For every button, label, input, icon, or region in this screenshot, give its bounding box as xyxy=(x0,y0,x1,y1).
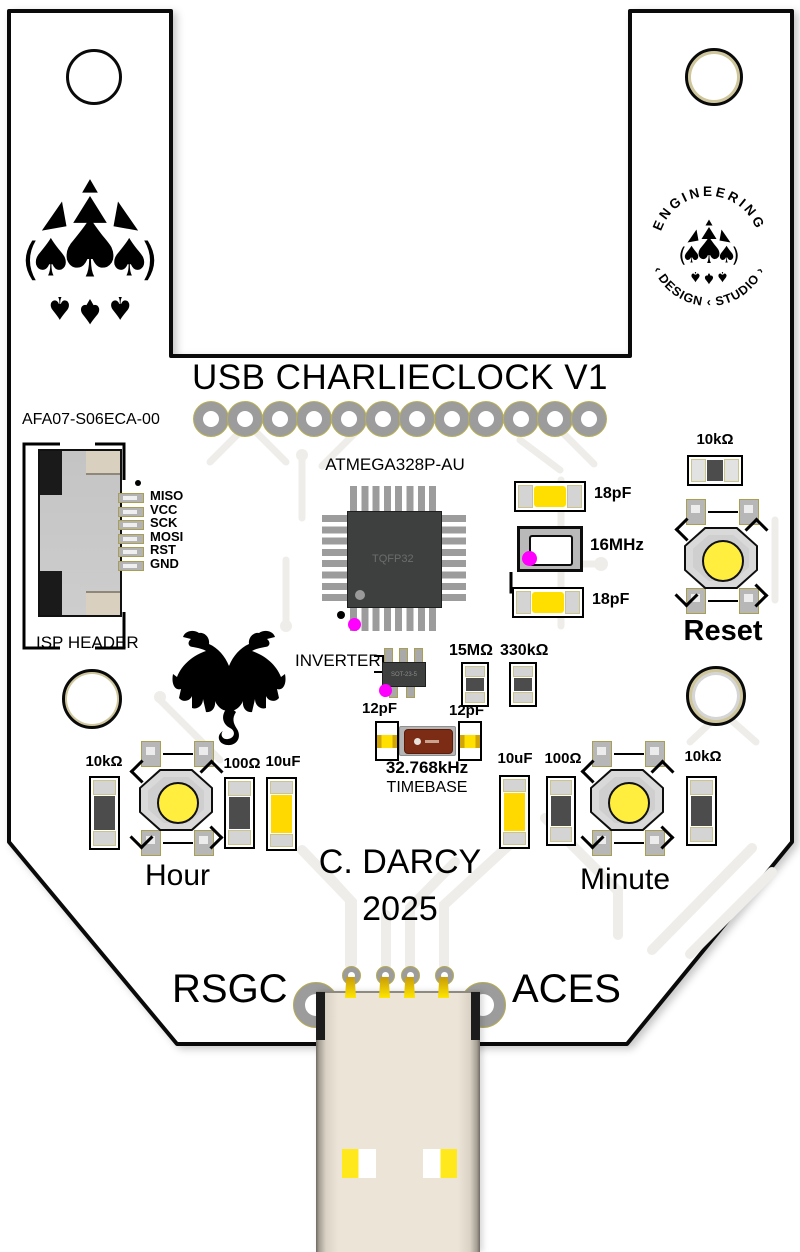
usb-contact-window-left xyxy=(342,1149,376,1178)
silk-dot-black xyxy=(337,611,345,619)
usb-shell-edge xyxy=(471,992,480,1040)
board-title: USB CHARLIECLOCK V1 xyxy=(160,360,640,397)
isp-pin-label-sck: SCK xyxy=(150,516,177,530)
mcu-package-label: TQFP32 xyxy=(372,554,414,566)
reset-resistor-label: 10kΩ xyxy=(683,432,747,448)
cap-18pf-bottom xyxy=(512,587,584,618)
through-hole-pad xyxy=(227,401,263,437)
minute-label: Minute xyxy=(565,864,685,896)
bias-resistor-2 xyxy=(509,662,537,707)
through-hole-pad xyxy=(503,401,539,437)
reset-button-cap xyxy=(702,540,744,582)
through-hole-pad xyxy=(537,401,573,437)
through-hole-pad xyxy=(468,401,504,437)
isp-pin xyxy=(118,507,144,517)
cap-18pf-top-label: 18pF xyxy=(594,486,631,503)
crystal-32khz-body xyxy=(404,729,453,754)
usb-pin xyxy=(438,977,449,998)
reset-resistor xyxy=(687,455,743,486)
mounting-hole-top-right xyxy=(685,48,743,106)
cap-12pf-left-label: 12pF xyxy=(362,701,397,717)
hour-pullup-label: 10kΩ xyxy=(80,754,128,770)
minute-series-label: 100Ω xyxy=(539,751,587,767)
crystal-16mhz-label: 16MHz xyxy=(590,536,644,554)
isp-pin-label-miso: MISO xyxy=(150,489,183,503)
mcu-pin1-dot xyxy=(355,590,365,600)
isp-connector-latch xyxy=(86,591,120,615)
through-hole-pad xyxy=(296,401,332,437)
timebase-freq-label: 32.768kHz xyxy=(377,759,477,777)
usb-contact-window-right xyxy=(423,1149,457,1178)
usb-shell-edge xyxy=(316,992,325,1040)
minute-pullup-label: 10kΩ xyxy=(678,749,728,765)
mcu-pins-right xyxy=(441,515,466,604)
minute-button xyxy=(586,739,672,859)
marker-dot-magenta xyxy=(522,551,537,566)
marker-dot-magenta xyxy=(348,618,361,631)
inverter-ic: SOT-23-5 xyxy=(382,662,426,687)
isp-connector-corner xyxy=(40,571,62,615)
minute-pullup-resistor xyxy=(686,776,717,846)
hour-button-cap xyxy=(157,782,199,824)
isp-caption: ISP HEADER xyxy=(36,634,139,652)
footer-right-label: ACES xyxy=(512,968,621,1010)
reset-label: Reset xyxy=(668,616,778,646)
mcu-part-label: ATMEGA328P-AU xyxy=(295,456,495,474)
hour-series-resistor xyxy=(224,777,255,849)
hour-series-label: 100Ω xyxy=(218,756,266,772)
mounting-hole-top-left xyxy=(66,49,122,105)
crystal-32khz-carrier xyxy=(399,726,456,756)
mcu-pins-left xyxy=(322,515,347,604)
through-hole-pad xyxy=(331,401,367,437)
inverter-label: INVERTER xyxy=(295,652,381,670)
year-label: 2025 xyxy=(300,892,500,928)
timebase-caption: TIMEBASE xyxy=(377,780,477,797)
hour-label: Hour xyxy=(125,860,230,892)
isp-pin xyxy=(118,534,144,544)
isp-part-label: AFA07-S06ECA-00 xyxy=(22,412,160,429)
isp-connector xyxy=(38,449,122,617)
through-hole-pad xyxy=(193,401,229,437)
mounting-hole-mid-right xyxy=(686,666,746,726)
pcb-render: ♠ ♠ ♠ ( ) ♠ ♠ ♠ xyxy=(0,0,800,1252)
usb-connector xyxy=(316,991,480,1252)
footer-left-label: RSGC xyxy=(172,968,288,1010)
cap-18pf-bottom-label: 18pF xyxy=(592,592,629,609)
isp-pin xyxy=(118,547,144,557)
hour-button xyxy=(135,739,221,859)
through-hole-pad xyxy=(571,401,607,437)
through-hole-pad xyxy=(399,401,435,437)
mcu-pins-top xyxy=(350,486,439,511)
through-hole-pad xyxy=(434,401,470,437)
isp-connector-corner xyxy=(40,451,62,495)
minute-capacitor xyxy=(499,775,530,849)
through-hole-pad xyxy=(365,401,401,437)
isp-connector-latch xyxy=(86,451,120,475)
author-label: C. DARCY xyxy=(300,845,500,881)
cap-18pf-top xyxy=(514,481,586,512)
isp-pin1-dot xyxy=(135,480,141,486)
minute-cap-label: 10uF xyxy=(492,751,538,767)
minute-button-cap xyxy=(608,782,650,824)
bias-resistor-2-label: 330kΩ xyxy=(500,643,548,660)
mounting-hole-mid-left xyxy=(62,669,122,729)
usb-pin xyxy=(345,977,356,998)
usb-pin xyxy=(404,977,415,998)
isp-pin xyxy=(118,493,144,503)
cap-12pf-right xyxy=(458,721,482,761)
inverter-package-label: SOT-23-5 xyxy=(391,672,417,678)
mcu-chip: TQFP32 xyxy=(347,511,442,608)
mcu-pins-bottom xyxy=(350,606,439,631)
cap-12pf-left xyxy=(375,721,399,761)
marker-dot-magenta xyxy=(379,684,392,697)
bias-resistor-1 xyxy=(461,662,489,707)
isp-pin-label-gnd: GND xyxy=(150,557,179,571)
isp-pin xyxy=(118,520,144,530)
minute-series-resistor xyxy=(546,776,576,846)
usb-pin xyxy=(379,977,390,998)
isp-pin xyxy=(118,561,144,571)
reset-button xyxy=(680,497,766,617)
hour-capacitor xyxy=(266,777,297,851)
isp-pin-label-rst: RST xyxy=(150,543,176,557)
bias-resistor-1-label: 15MΩ xyxy=(449,643,493,660)
through-hole-pad xyxy=(262,401,298,437)
hour-pullup-resistor xyxy=(89,776,120,850)
hour-cap-label: 10uF xyxy=(262,754,304,770)
